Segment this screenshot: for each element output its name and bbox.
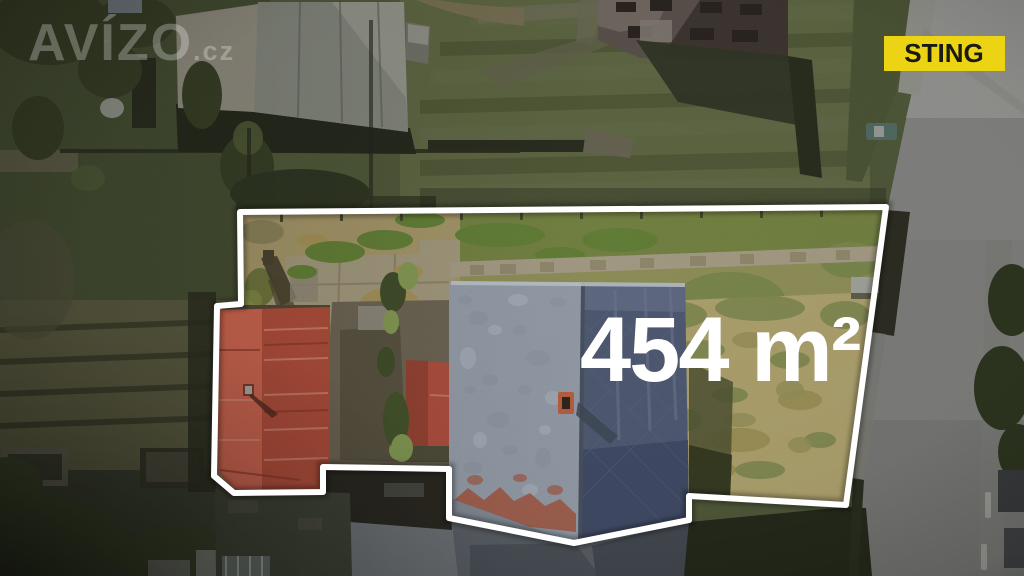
svg-text:454 m²: 454 m² — [580, 299, 860, 401]
svg-text:STING: STING — [904, 38, 983, 68]
